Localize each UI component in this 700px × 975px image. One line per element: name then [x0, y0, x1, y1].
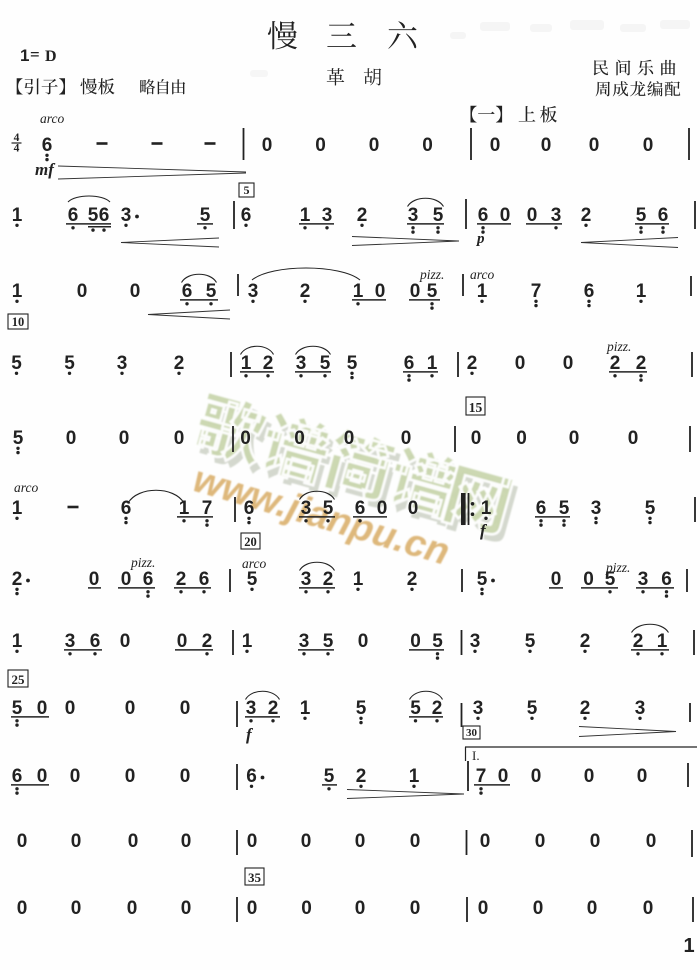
svg-text:0: 0: [121, 569, 132, 590]
svg-text:0: 0: [37, 766, 48, 787]
svg-text:0: 0: [344, 428, 355, 449]
svg-text:0: 0: [177, 631, 188, 652]
svg-text:1: 1: [12, 498, 23, 519]
svg-text:5: 5: [410, 698, 421, 719]
svg-text:0: 0: [181, 831, 192, 852]
svg-text:0: 0: [130, 281, 141, 302]
svg-text:2: 2: [174, 353, 185, 374]
svg-text:6: 6: [244, 498, 255, 519]
svg-text:0: 0: [422, 135, 433, 156]
svg-text:0: 0: [294, 428, 305, 449]
svg-text:6: 6: [182, 281, 193, 302]
svg-text:D: D: [45, 48, 57, 65]
svg-text:0: 0: [17, 831, 28, 852]
svg-text:0: 0: [174, 428, 185, 449]
svg-text:3: 3: [299, 631, 310, 652]
svg-text:2: 2: [176, 569, 187, 590]
svg-text:0: 0: [71, 898, 82, 919]
svg-text:6: 6: [536, 498, 547, 519]
svg-text:5: 5: [13, 428, 24, 449]
svg-text:0: 0: [498, 766, 509, 787]
svg-text:arco: arco: [40, 111, 64, 126]
svg-text:0: 0: [375, 281, 386, 302]
svg-text:5: 5: [320, 353, 331, 374]
svg-text:0: 0: [410, 281, 421, 302]
svg-text:6: 6: [246, 766, 257, 787]
svg-text:0: 0: [637, 766, 648, 787]
svg-text:0: 0: [71, 831, 82, 852]
svg-text:6: 6: [199, 569, 210, 590]
svg-text:3: 3: [301, 569, 312, 590]
svg-text:6: 6: [68, 205, 79, 226]
svg-text:7: 7: [202, 498, 213, 519]
svg-text:1: 1: [481, 498, 492, 519]
svg-text:0: 0: [70, 766, 81, 787]
svg-text:0: 0: [563, 353, 574, 374]
svg-text:0: 0: [531, 766, 542, 787]
svg-text:2: 2: [580, 631, 591, 652]
svg-text:3: 3: [591, 498, 602, 519]
svg-text:6: 6: [90, 631, 101, 652]
svg-text:5: 5: [477, 569, 488, 590]
svg-text:0: 0: [301, 898, 312, 919]
svg-text:0: 0: [643, 135, 654, 156]
svg-text:0: 0: [628, 428, 639, 449]
svg-text:3: 3: [65, 631, 76, 652]
svg-text:5: 5: [427, 281, 438, 302]
svg-text:0: 0: [401, 428, 412, 449]
svg-text:0: 0: [646, 831, 657, 852]
svg-text:arco: arco: [14, 480, 38, 495]
svg-text:0: 0: [569, 428, 580, 449]
svg-text:1: 1: [241, 353, 252, 374]
svg-text:5: 5: [645, 498, 656, 519]
svg-text:pizz.: pizz.: [419, 267, 444, 282]
svg-text:0: 0: [587, 898, 598, 919]
svg-text:0: 0: [119, 428, 130, 449]
svg-text:0: 0: [471, 428, 482, 449]
svg-text:2: 2: [610, 353, 621, 374]
svg-text:35: 35: [248, 870, 262, 885]
svg-text:2: 2: [323, 569, 334, 590]
svg-text:2: 2: [636, 353, 647, 374]
svg-text:0: 0: [17, 898, 28, 919]
svg-text:15: 15: [469, 400, 483, 415]
svg-text:5: 5: [636, 205, 647, 226]
svg-text:mf: mf: [35, 160, 56, 179]
svg-text:0: 0: [358, 631, 369, 652]
svg-text:1: 1: [409, 766, 420, 787]
svg-text:2: 2: [202, 631, 213, 652]
svg-text:0: 0: [535, 831, 546, 852]
svg-text:1: 1: [20, 46, 29, 65]
svg-text:30: 30: [466, 727, 478, 739]
svg-text:0: 0: [408, 498, 419, 519]
svg-text:3: 3: [408, 205, 419, 226]
svg-text:1: 1: [636, 281, 647, 302]
svg-text:0: 0: [181, 898, 192, 919]
svg-text:2: 2: [467, 353, 478, 374]
svg-text:5: 5: [244, 183, 250, 197]
svg-text:1: 1: [353, 569, 364, 590]
svg-text:0: 0: [127, 898, 138, 919]
svg-text:5: 5: [324, 766, 335, 787]
svg-text:0: 0: [66, 428, 77, 449]
svg-text:6: 6: [12, 766, 23, 787]
svg-text:1: 1: [353, 281, 364, 302]
svg-text:0: 0: [527, 205, 538, 226]
svg-text:0: 0: [590, 831, 601, 852]
svg-text:0: 0: [180, 698, 191, 719]
svg-text:0: 0: [240, 428, 251, 449]
svg-text:0: 0: [643, 898, 654, 919]
svg-text:3: 3: [121, 205, 132, 226]
svg-text:6: 6: [99, 205, 110, 226]
svg-text:0: 0: [89, 569, 100, 590]
svg-text:2: 2: [357, 205, 368, 226]
svg-text:0: 0: [125, 698, 136, 719]
svg-text:1: 1: [300, 205, 311, 226]
svg-text:5: 5: [432, 631, 443, 652]
svg-text:2: 2: [407, 569, 418, 590]
svg-text:0: 0: [355, 898, 366, 919]
svg-text:arco: arco: [470, 267, 494, 282]
svg-text:1: 1: [657, 631, 668, 652]
svg-text:0: 0: [583, 569, 594, 590]
svg-text:6: 6: [42, 135, 53, 156]
svg-text:5: 5: [527, 698, 538, 719]
svg-text:0: 0: [315, 135, 326, 156]
svg-text:5: 5: [323, 498, 334, 519]
svg-text:5: 5: [64, 353, 75, 374]
svg-text:3: 3: [296, 353, 307, 374]
svg-text:3: 3: [635, 698, 646, 719]
svg-text:0: 0: [480, 831, 491, 852]
svg-text:3: 3: [470, 631, 481, 652]
svg-text:2: 2: [432, 698, 443, 719]
svg-text:1: 1: [683, 935, 694, 957]
svg-text:2: 2: [633, 631, 644, 652]
svg-text:0: 0: [262, 135, 273, 156]
svg-text:1: 1: [12, 631, 23, 652]
svg-text:0: 0: [77, 281, 88, 302]
svg-text:5: 5: [525, 631, 536, 652]
svg-text:1: 1: [427, 353, 438, 374]
svg-text:10: 10: [12, 315, 25, 329]
svg-text:5: 5: [88, 205, 99, 226]
svg-text:0: 0: [247, 898, 258, 919]
svg-text:25: 25: [12, 672, 26, 687]
svg-text:5: 5: [11, 353, 22, 374]
svg-text:5: 5: [559, 498, 570, 519]
svg-text:=: =: [30, 45, 40, 64]
svg-text:0: 0: [128, 831, 139, 852]
svg-text:2: 2: [12, 569, 23, 590]
svg-text:2: 2: [581, 205, 592, 226]
svg-text:0: 0: [355, 831, 366, 852]
svg-text:7: 7: [476, 766, 487, 787]
svg-text:3: 3: [473, 698, 484, 719]
svg-text:0: 0: [533, 898, 544, 919]
svg-text:1: 1: [12, 205, 23, 226]
svg-text:5: 5: [433, 205, 444, 226]
svg-text:pizz.: pizz.: [606, 339, 631, 354]
svg-text:5: 5: [247, 569, 258, 590]
svg-text:2: 2: [300, 281, 311, 302]
svg-text:3: 3: [248, 281, 259, 302]
svg-text:0: 0: [247, 831, 258, 852]
svg-text:1: 1: [12, 281, 23, 302]
svg-text:5: 5: [356, 698, 367, 719]
svg-text:2: 2: [263, 353, 274, 374]
svg-text:0: 0: [120, 631, 131, 652]
svg-text:6: 6: [584, 281, 595, 302]
svg-text:5: 5: [206, 281, 217, 302]
svg-text:3: 3: [117, 353, 128, 374]
svg-text:0: 0: [377, 498, 388, 519]
svg-text:p: p: [475, 231, 485, 247]
svg-text:6: 6: [355, 498, 366, 519]
svg-text:0: 0: [490, 135, 501, 156]
svg-text:5: 5: [200, 205, 211, 226]
svg-text:0: 0: [410, 898, 421, 919]
svg-text:1: 1: [477, 281, 488, 302]
svg-text:0: 0: [301, 831, 312, 852]
svg-text:0: 0: [589, 135, 600, 156]
svg-text:6: 6: [478, 205, 489, 226]
svg-text:6: 6: [661, 569, 672, 590]
svg-text:1: 1: [242, 631, 253, 652]
svg-text:I.: I.: [472, 748, 480, 763]
svg-text:0: 0: [65, 698, 76, 719]
svg-text:1: 1: [179, 498, 190, 519]
svg-text:0: 0: [180, 766, 191, 787]
svg-text:3: 3: [322, 205, 333, 226]
svg-text:0: 0: [515, 353, 526, 374]
svg-text:6: 6: [143, 569, 154, 590]
svg-text:0: 0: [541, 135, 552, 156]
svg-text:5: 5: [12, 698, 23, 719]
svg-text:6: 6: [241, 205, 252, 226]
svg-text:0: 0: [410, 631, 421, 652]
svg-text:3: 3: [638, 569, 649, 590]
svg-text:0: 0: [37, 698, 48, 719]
svg-text:1: 1: [300, 698, 311, 719]
svg-text:0: 0: [478, 898, 489, 919]
svg-text:pizz.: pizz.: [130, 555, 155, 570]
svg-text:0: 0: [500, 205, 511, 226]
svg-text:3: 3: [301, 498, 312, 519]
svg-text:5: 5: [605, 569, 616, 590]
svg-text:2: 2: [268, 698, 279, 719]
svg-text:5: 5: [323, 631, 334, 652]
svg-text:2: 2: [580, 698, 591, 719]
svg-text:6: 6: [658, 205, 669, 226]
svg-text:0: 0: [584, 766, 595, 787]
svg-text:5: 5: [347, 353, 358, 374]
svg-text:0: 0: [125, 766, 136, 787]
svg-text:20: 20: [244, 535, 257, 549]
svg-text:0: 0: [551, 569, 562, 590]
svg-text:3: 3: [246, 698, 257, 719]
svg-text:0: 0: [516, 428, 527, 449]
svg-text:4: 4: [14, 143, 20, 155]
svg-text:0: 0: [369, 135, 380, 156]
svg-text:2: 2: [356, 766, 367, 787]
svg-text:6: 6: [404, 353, 415, 374]
svg-text:3: 3: [551, 205, 562, 226]
svg-text:7: 7: [531, 281, 542, 302]
svg-text:0: 0: [410, 831, 421, 852]
